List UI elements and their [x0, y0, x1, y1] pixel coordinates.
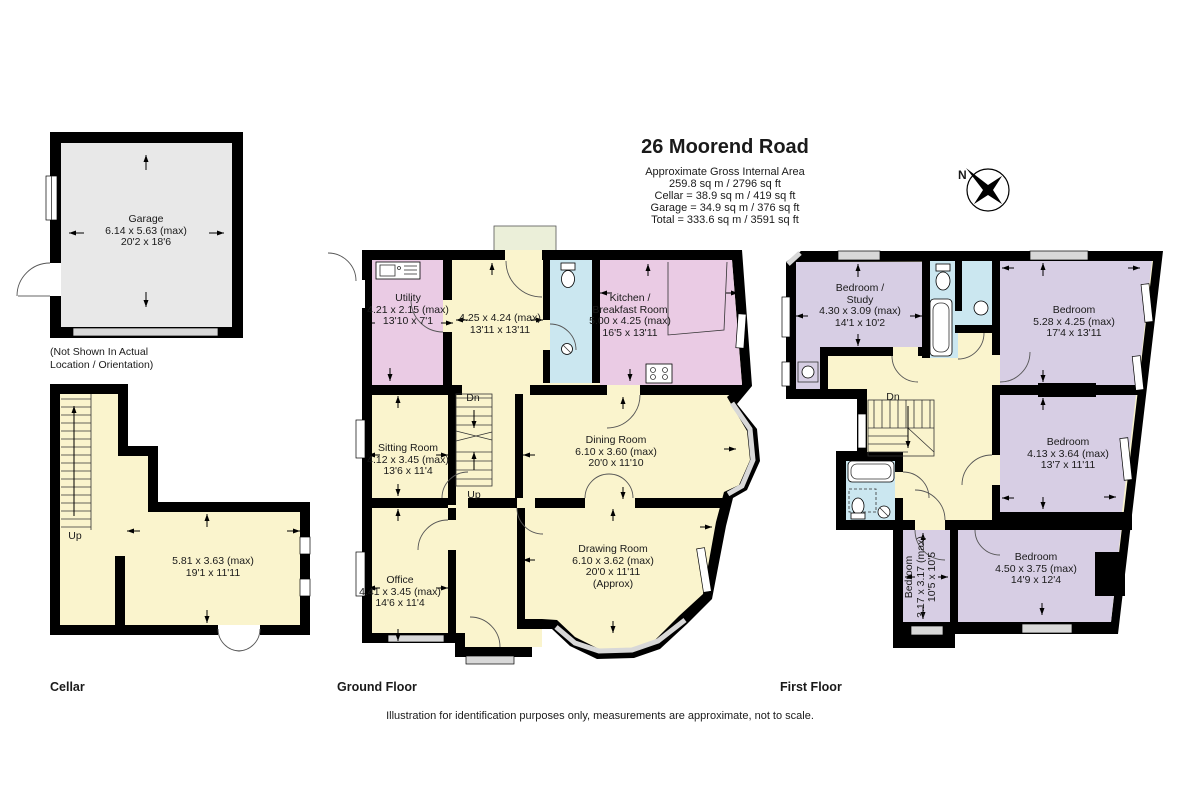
- disclaimer: Illustration for identification purposes…: [386, 710, 814, 722]
- front-door-opening: [505, 250, 542, 262]
- first-floor-label: First Floor: [780, 680, 842, 694]
- bathroom-left-sink-icon: [878, 506, 890, 518]
- bathroom-left-bath-icon: [848, 461, 894, 482]
- garage-note: (Not Shown In Actual Location / Orientat…: [50, 346, 153, 372]
- first-dn-label: Dn: [886, 392, 899, 403]
- floorplan-sheet: 26 Moorend Road Approximate Gross Intern…: [0, 0, 1200, 800]
- office-bottom-window: [388, 635, 444, 642]
- kitchen-label: Kitchen / Breakfast Room 5.00 x 4.25 (ma…: [589, 293, 671, 339]
- utility-label: Utility 4.21 x 2.15 (max) 13'10 x 7'1: [367, 293, 449, 328]
- compass-icon: [966, 168, 1009, 211]
- rear-step: [466, 656, 514, 664]
- ground-up-label: Up: [467, 490, 480, 501]
- cellar-plan: [50, 384, 310, 651]
- dining-room-label: Dining Room 6.10 x 3.60 (max) 20'0 x 11'…: [575, 435, 657, 470]
- bedroom-br-label: Bedroom 4.50 x 3.75 (max) 14'9 x 12'4: [995, 552, 1077, 587]
- study-top-window: [838, 251, 880, 260]
- page-title: 26 Moorend Road: [641, 136, 809, 159]
- bathroom-top-sink-icon: [974, 301, 988, 315]
- ground-dn-label: Dn: [466, 393, 479, 404]
- study-label: Bedroom / Study 4.30 x 3.09 (max) 14'1 x…: [819, 283, 901, 329]
- bathroom-top-bath-icon: [930, 299, 952, 356]
- sitting-window: [356, 420, 365, 458]
- landing-window: [858, 414, 866, 448]
- wc-toilet-icon: [561, 263, 575, 288]
- north-label: N: [958, 168, 967, 182]
- cellar-window: [300, 537, 310, 554]
- drawing-room-label: Drawing Room 6.10 x 3.62 (max) 20'0 x 11…: [572, 544, 654, 590]
- cellar-floor-label: Cellar: [50, 680, 85, 694]
- cellar-window: [300, 579, 310, 596]
- hall-label: 4.25 x 4.24 (max) 13'11 x 13'11: [459, 313, 541, 336]
- bedroom-small-window: [911, 626, 943, 635]
- utility-sink-icon: [376, 262, 420, 279]
- garage-door-opening: [50, 263, 61, 296]
- garage-door-arc: [17, 263, 50, 296]
- bedroom-tr-label: Bedroom 5.28 x 4.25 (max) 17'4 x 13'11: [1033, 305, 1115, 340]
- study-nook-window: [782, 362, 790, 386]
- study-left-window: [782, 297, 790, 337]
- bedroom-mr-label: Bedroom 4.13 x 3.64 (max) 13'7 x 11'11: [1027, 437, 1109, 472]
- utility-door-opening: [356, 280, 365, 308]
- ground-floor-label: Ground Floor: [337, 680, 417, 694]
- garage-bottom-window: [73, 328, 218, 336]
- bathroom-top-toilet-icon: [936, 264, 950, 290]
- bedroom-tr-top-window: [1030, 251, 1088, 260]
- bathroom-left-toilet-icon: [851, 498, 865, 519]
- bedroom-br-bay-window: [1022, 624, 1072, 633]
- garage-label: Garage 6.14 x 5.63 (max) 20'2 x 18'6: [105, 214, 187, 249]
- area-summary: Approximate Gross Internal Area 259.8 sq…: [645, 166, 805, 226]
- floorplan-graphic: [0, 0, 1200, 800]
- office-label: Office 4.41 x 3.45 (max) 14'6 x 11'4: [359, 575, 441, 610]
- hob-icon: [646, 364, 672, 383]
- sitting-room-label: Sitting Room 4.12 x 3.45 (max) 13'6 x 11…: [367, 443, 449, 478]
- cellar-door-opening: [218, 625, 260, 635]
- porch: [494, 226, 556, 252]
- cellar-up-label: Up: [68, 531, 81, 542]
- wc-sink-icon: [562, 344, 573, 355]
- cellar-room-label: 5.81 x 3.63 (max) 19'1 x 11'11: [172, 556, 254, 579]
- bedroom-small-label: Bedroom 3.17 x 3.17 (max) 10'5 x 10'5: [904, 536, 939, 618]
